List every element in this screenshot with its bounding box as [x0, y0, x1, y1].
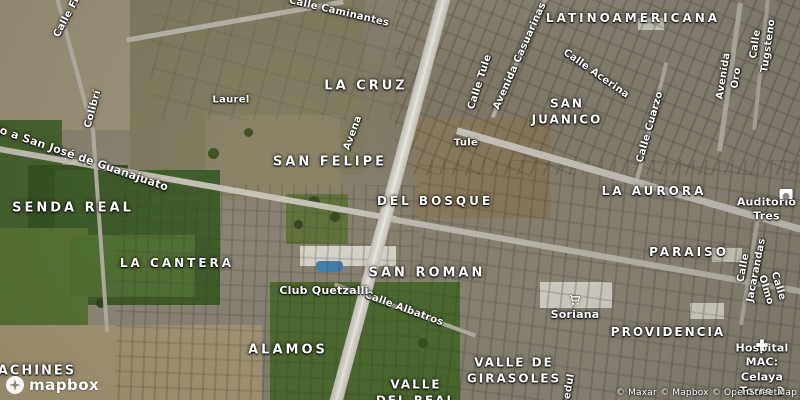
area-label-alamos: ALAMOS	[248, 343, 328, 360]
poi-label-club-quetzalli: Club Quetzalli	[279, 284, 368, 298]
street-label-avena: Avena	[341, 114, 366, 152]
map-attribution[interactable]: © Maxar © Mapbox © OpenStreetMap	[616, 388, 797, 398]
satellite-map[interactable]: LATINOAMERICANALA CRUZSAN JUANICOSAN FEL…	[0, 0, 800, 400]
street-label-tule: Tule	[454, 137, 478, 150]
street-label-calle-olmo: Calle Olmo	[755, 270, 789, 307]
area-label-providencia: PROVIDENCIA	[611, 325, 725, 341]
area-label-del-bosque: DEL BOSQUE	[377, 194, 493, 210]
street-label-no-a-san-jos-de-guanajuato: no a San José de Guanajuato	[0, 121, 170, 195]
area-label-san-felipe: SAN FELIPE	[273, 155, 387, 172]
street-label-calle-tugsteno: Calle Tugsteno	[745, 16, 778, 73]
area-label-valle-del-real: VALLE DEL REAL	[376, 377, 456, 400]
street-label-avenida-oro: Avenida Oro	[712, 40, 749, 113]
hospital-cross-icon	[755, 338, 769, 352]
street-label-colibr: Colibrí	[82, 89, 105, 130]
area-label-senda-real: SENDA REAL	[12, 201, 134, 218]
area-label-san-juanico: SAN JUANICO	[532, 96, 603, 127]
street-label-laurel: Laurel	[212, 94, 249, 107]
area-label-la-cantera: LA CANTERA	[120, 256, 234, 272]
area-label-valle-de-girasoles: VALLE DE GIRASOLES	[467, 355, 561, 386]
area-label-la-cruz: LA CRUZ	[324, 79, 407, 96]
street-label-calle-caminantes: Calle Caminantes	[288, 0, 391, 30]
mapbox-wordmark: mapbox	[29, 376, 99, 394]
area-label-paraiso: PARAISO	[649, 245, 729, 261]
street-label-avenida-casuarinas: Avenida Casuarinas	[490, 0, 549, 111]
map-labels-layer: LATINOAMERICANALA CRUZSAN JUANICOSAN FEL…	[0, 0, 800, 400]
mapbox-logo[interactable]: mapbox	[5, 375, 99, 395]
street-label-calle-fr: Calle Fr	[51, 0, 83, 40]
mapbox-logo-icon	[5, 375, 25, 395]
area-label-san-roman: SAN ROMAN	[369, 266, 486, 283]
auditorium-icon	[779, 187, 794, 202]
poi-label-soriana: Soriana	[551, 308, 600, 322]
street-label-calle-acerina: Calle Acerina	[560, 46, 631, 101]
area-label-latinoamericana: LATINOAMERICANA	[546, 11, 720, 27]
street-label-calle-cuarzo: Calle Cuarzo	[634, 90, 667, 164]
street-label-calle-tule: Calle Tule	[465, 53, 495, 111]
area-label-la-aurora: LA AURORA	[602, 184, 707, 200]
cart-icon	[569, 294, 582, 307]
street-label-calle-albatros: Calle Albatros	[363, 289, 445, 330]
